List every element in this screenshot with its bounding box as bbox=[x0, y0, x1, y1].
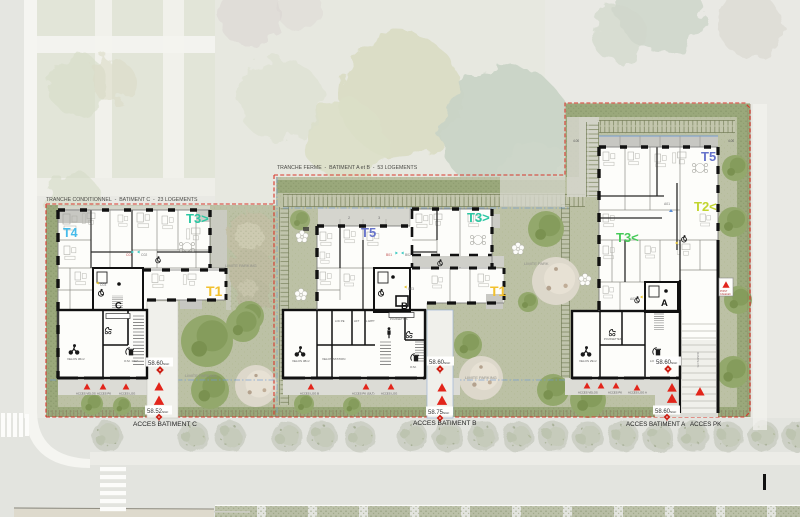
svg-text:ACCES BATIMENT B: ACCES BATIMENT B bbox=[413, 420, 477, 427]
svg-text:RAMPE PK: RAMPE PK bbox=[696, 352, 700, 368]
svg-text:ACCES PK: ACCES PK bbox=[97, 392, 111, 396]
svg-text:LIFT: LIFT bbox=[354, 319, 360, 323]
svg-text:ACCES BATIMENT A: ACCES BATIMENT A bbox=[626, 421, 686, 428]
svg-text:ACCES LOG A: ACCES LOG A bbox=[628, 391, 647, 395]
svg-text:ACCES LOG: ACCES LOG bbox=[119, 392, 135, 396]
svg-text:T1: T1 bbox=[490, 283, 507, 299]
svg-text:LIMITE PARKING: LIMITE PARKING bbox=[185, 373, 217, 378]
svg-text:O.M.: O.M. bbox=[410, 365, 417, 369]
svg-text:ACCES VELOS: ACCES VELOS bbox=[578, 391, 598, 395]
svg-text:LIMITE PARK: LIMITE PARK bbox=[524, 261, 549, 266]
svg-text:B03: B03 bbox=[408, 287, 414, 291]
svg-text:4.00: 4.00 bbox=[728, 139, 734, 143]
svg-text:T3>: T3> bbox=[186, 211, 209, 226]
svg-text:VELOS STATION: VELOS STATION bbox=[322, 357, 345, 361]
svg-text:VELOS 36m²: VELOS 36m² bbox=[67, 357, 85, 361]
svg-text:T3<: T3< bbox=[616, 230, 639, 245]
svg-text:TRANCHE FERME - BATIMENT A e: TRANCHE FERME - BATIMENT A et B - 53 LOG… bbox=[277, 165, 418, 171]
svg-text:ACCES VELOS: ACCES VELOS bbox=[76, 392, 96, 396]
svg-text:T2<: T2< bbox=[694, 199, 717, 214]
svg-text:ACCES PK: ACCES PK bbox=[608, 391, 622, 395]
svg-text:TRANCHE CONDITIONNEL - BATIM: TRANCHE CONDITIONNEL - BATIMENT C - 23 L… bbox=[46, 197, 198, 203]
svg-text:C: C bbox=[115, 301, 122, 312]
svg-text:VELOS 29m²: VELOS 29m² bbox=[579, 359, 597, 363]
svg-text:O.M. 14m²: O.M. 14m² bbox=[124, 359, 138, 363]
svg-text:B02: B02 bbox=[405, 253, 411, 257]
svg-text:POUSSETTES: POUSSETTES bbox=[604, 337, 622, 341]
svg-text:T5: T5 bbox=[361, 225, 376, 240]
svg-text:ACCES PK: ACCES PK bbox=[690, 421, 722, 428]
svg-text:ACCES LOG: ACCES LOG bbox=[381, 392, 397, 396]
svg-text:LOC PE: LOC PE bbox=[335, 319, 345, 323]
svg-text:T5: T5 bbox=[701, 149, 716, 164]
svg-text:A01: A01 bbox=[664, 202, 670, 206]
svg-text:VELOS 38m²: VELOS 38m² bbox=[292, 359, 310, 363]
svg-text:C02: C02 bbox=[141, 253, 147, 257]
svg-text:POUSSETTES: POUSSETTES bbox=[390, 317, 408, 321]
svg-text:ACCES BATIMENT C: ACCES BATIMENT C bbox=[133, 421, 197, 428]
svg-text:T1: T1 bbox=[206, 283, 223, 299]
svg-text:T3>: T3> bbox=[467, 210, 490, 225]
svg-text:LIMITE PARKING: LIMITE PARKING bbox=[465, 375, 497, 380]
svg-text:B01: B01 bbox=[386, 253, 392, 257]
svg-text:CALELEC: CALELEC bbox=[720, 293, 731, 296]
svg-text:4.00: 4.00 bbox=[573, 139, 579, 143]
svg-text:L APPT: L APPT bbox=[366, 319, 375, 323]
svg-text:A03: A03 bbox=[630, 297, 636, 301]
svg-text:C03: C03 bbox=[100, 283, 106, 287]
svg-text:ACCES PK (S/LT): ACCES PK (S/LT) bbox=[352, 392, 375, 396]
svg-text:B: B bbox=[401, 301, 408, 312]
svg-text:ACCES LOG B: ACCES LOG B bbox=[300, 392, 319, 396]
svg-text:LIMITE PARKING: LIMITE PARKING bbox=[225, 263, 257, 268]
svg-text:C01: C01 bbox=[126, 253, 132, 257]
svg-text:T4: T4 bbox=[63, 226, 78, 240]
svg-text:A: A bbox=[661, 298, 668, 309]
